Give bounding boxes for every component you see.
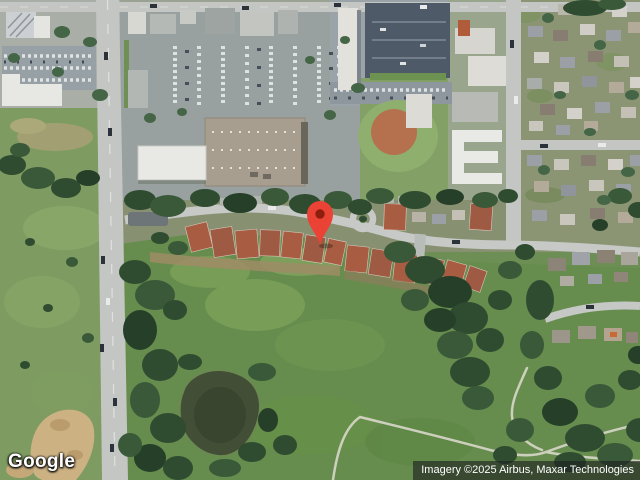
- ne-street: [520, 140, 640, 150]
- satellite-imagery: [0, 0, 640, 480]
- map-viewport[interactable]: Google Imagery ©2025 Airbus, Maxar Techn…: [0, 0, 640, 480]
- school-street: [506, 0, 521, 244]
- google-logo[interactable]: Google: [8, 451, 75, 473]
- attribution-text: Imagery ©2025 Airbus, Maxar Technologies: [413, 461, 640, 480]
